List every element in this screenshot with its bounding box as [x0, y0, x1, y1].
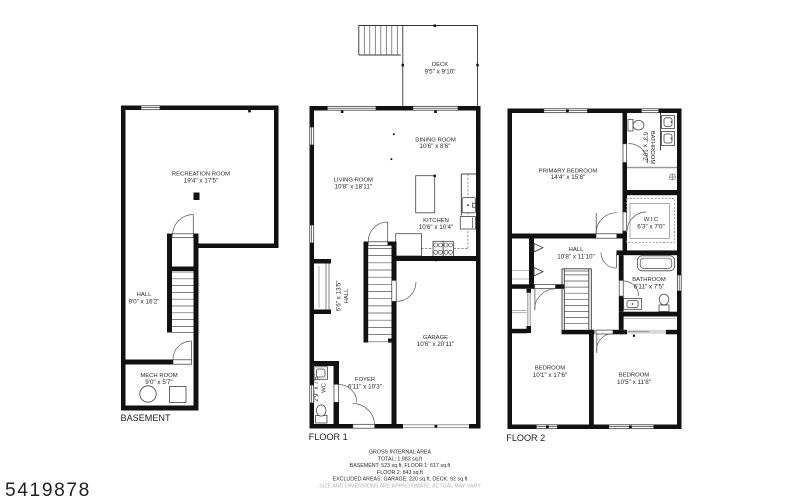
svg-text:6'11" x 10'3": 6'11" x 10'3" [348, 384, 382, 391]
svg-text:10'1" x 17'6": 10'1" x 17'6" [533, 372, 568, 379]
svg-text:BATHROOM: BATHROOM [632, 277, 666, 283]
svg-text:HALL: HALL [137, 292, 152, 298]
svg-text:19'4" x 17'5": 19'4" x 17'5" [184, 177, 219, 184]
svg-text:6'3" x 7'0": 6'3" x 7'0" [637, 224, 665, 231]
svg-text:10'5" x 11'8": 10'5" x 11'8" [617, 379, 651, 386]
svg-text:FOYER: FOYER [355, 377, 375, 383]
svg-text:BASEMENT: BASEMENT [121, 413, 171, 423]
svg-text:5419878: 5419878 [5, 480, 91, 500]
svg-text:14'4" x 15'8": 14'4" x 15'8" [551, 174, 586, 181]
svg-text:DECK: DECK [432, 62, 448, 68]
svg-text:9'0" x 5'7": 9'0" x 5'7" [145, 379, 173, 386]
svg-text:9'0" x 16'2": 9'0" x 16'2" [128, 299, 159, 306]
svg-text:10'8" x 18'11": 10'8" x 18'11" [335, 183, 373, 190]
svg-text:FLOOR 1: FLOOR 1 [309, 432, 348, 442]
svg-text:WC: WC [321, 382, 327, 393]
svg-text:GROSS INTERNAL AREA: GROSS INTERNAL AREA [369, 450, 432, 456]
svg-text:EXCLUDED AREAS: GARAGE: 220 sq: EXCLUDED AREAS: GARAGE: 220 sq.ft, DECK:… [333, 477, 468, 483]
svg-text:FLOOR 2: FLOOR 2 [506, 433, 545, 443]
svg-text:BEDROOM: BEDROOM [619, 373, 650, 379]
svg-text:2'9" x 7'6": 2'9" x 7'6" [313, 374, 320, 402]
svg-text:6'11" x 7'5": 6'11" x 7'5" [634, 284, 665, 291]
svg-text:10'6" x 20'11": 10'6" x 20'11" [417, 341, 455, 348]
svg-text:6'6" x 13'5": 6'6" x 13'5" [336, 280, 343, 311]
svg-text:BEDROOM: BEDROOM [535, 366, 566, 372]
svg-text:BATHROOM: BATHROOM [649, 131, 655, 165]
svg-text:10'6" x 10'4": 10'6" x 10'4" [419, 224, 454, 231]
svg-text:6'3" x 10'2": 6'3" x 10'2" [642, 132, 649, 163]
svg-text:HALL: HALL [569, 247, 584, 253]
svg-text:SIZE AND DIMENSIONS ARE APPROX: SIZE AND DIMENSIONS ARE APPROXIMATE, ACT… [319, 484, 481, 490]
svg-text:FLOOR 2: 843 sq.ft: FLOOR 2: 843 sq.ft [377, 470, 423, 476]
svg-text:TOTAL: 1,983 sq.ft: TOTAL: 1,983 sq.ft [378, 456, 423, 462]
svg-text:HALL: HALL [344, 288, 350, 303]
svg-text:10'8" x 11'10": 10'8" x 11'10" [557, 254, 595, 261]
svg-text:W.I.C: W.I.C [644, 217, 659, 223]
svg-text:BASEMENT: 523 sq.ft, FLOOR 1:: BASEMENT: 523 sq.ft, FLOOR 1: 617 sq.ft [350, 463, 451, 469]
svg-text:9'5" x 9'10": 9'5" x 9'10" [424, 69, 455, 76]
svg-text:10'6" x 8'6": 10'6" x 8'6" [419, 143, 450, 150]
